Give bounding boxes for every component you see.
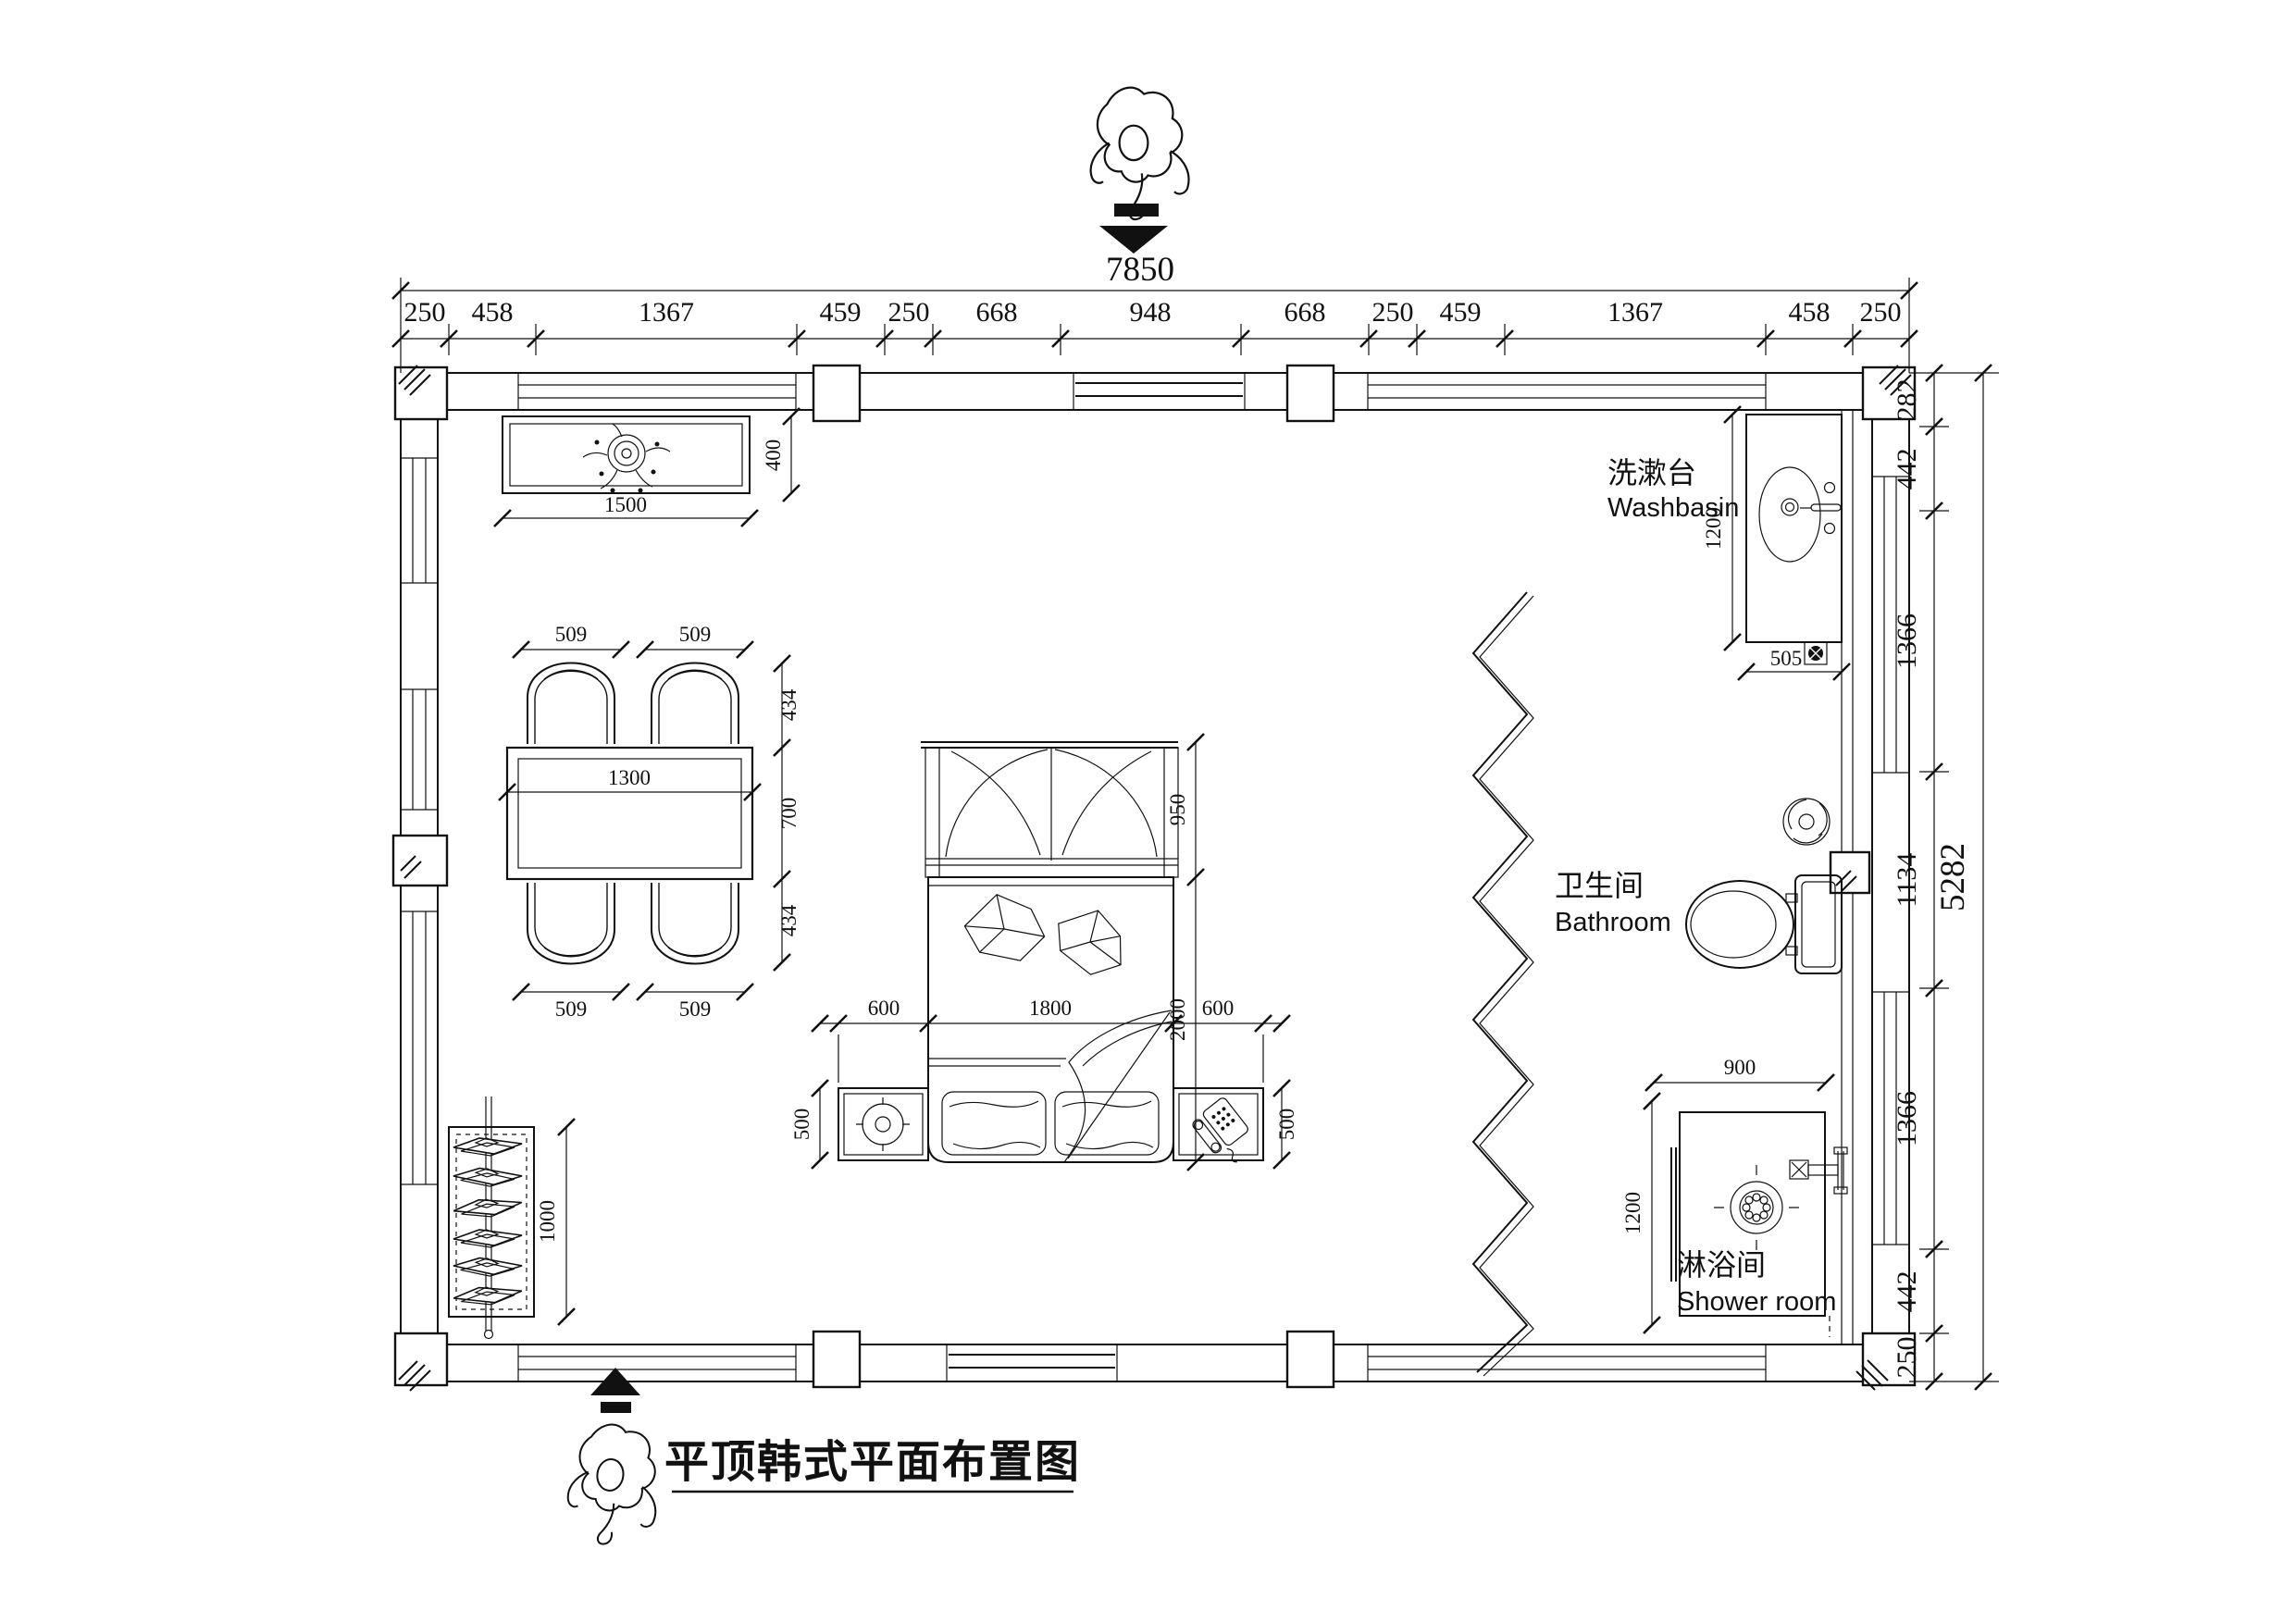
entry-top (1091, 88, 1189, 254)
window-top-left (518, 373, 796, 410)
dim-right-0: 282 (1892, 379, 1922, 421)
dim-top-3: 459 (820, 297, 862, 328)
dining-chair (652, 663, 738, 745)
entry-arrow-top-icon (1114, 204, 1159, 217)
dim-tv-depth: 400 (762, 440, 785, 472)
dim-top-2: 1367 (639, 297, 694, 328)
dim-top-5: 668 (976, 297, 1018, 328)
hanger-icon (453, 1285, 523, 1307)
dim-right-1: 442 (1892, 449, 1922, 490)
nightstand-left (838, 1088, 928, 1160)
hanger-icon (453, 1138, 522, 1156)
dim-bed-w: 1800 (1029, 997, 1072, 1020)
dim-stand-d: 500 (790, 1109, 813, 1141)
dining-chair (652, 883, 738, 964)
dim-stand-d: 500 (1275, 1109, 1298, 1141)
dim-chair-w: 509 (555, 623, 588, 646)
bathroom-label-en: Bathroom (1555, 908, 1671, 937)
pillow-icon (942, 1092, 1159, 1155)
column-bottom-left (395, 1333, 447, 1385)
floor-plan-canvas: 7850 250 458 1367 459 250 668 948 668 25… (0, 0, 2296, 1623)
dim-basin-w: 505 (1770, 647, 1803, 670)
entry-door-top (1074, 373, 1245, 410)
tv-console: 1500 400 (494, 408, 800, 527)
window-top-right (1368, 373, 1766, 410)
floor-plan-sheet: 7850 250 458 1367 459 250 668 948 668 25… (0, 0, 2296, 1623)
dim-top-4: 250 (888, 297, 930, 328)
column-top-left (395, 367, 447, 419)
dim-right-2: 1366 (1892, 613, 1922, 669)
cushion-icon (960, 886, 1132, 981)
column-top-mid-1 (813, 365, 860, 421)
shower-head-icon (1790, 1147, 1847, 1194)
washbasin-area: 洗漱台 Washbasin 1200 505 (1607, 406, 1850, 680)
dim-nightstand-w: 600 (1202, 997, 1235, 1020)
column-bottom-mid-1 (813, 1332, 860, 1387)
dim-right-4: 1366 (1892, 1091, 1922, 1146)
shower-label-zh: 淋浴间 (1677, 1248, 1766, 1282)
lamp-icon (856, 1097, 910, 1151)
dim-top-6: 948 (1130, 297, 1172, 328)
dim-top-12: 250 (1860, 297, 1902, 328)
dim-seat-d: 434 (777, 688, 800, 721)
dim-tv-width: 1500 (604, 493, 647, 516)
drawing-title: 平顶韩式平面布置图 (664, 1438, 1081, 1487)
dim-table-d: 700 (777, 798, 800, 830)
dim-right-5: 442 (1892, 1271, 1922, 1313)
dim-nightstand-w: 600 (868, 997, 900, 1020)
dim-shower-d: 1200 (1621, 1192, 1644, 1234)
dim-top-0: 250 (404, 297, 446, 328)
toilet-icon (1686, 875, 1842, 973)
right-dimension-total: 5282 (1934, 365, 1992, 1390)
person-icon (1091, 88, 1189, 219)
dim-total-width: 7850 (1106, 251, 1174, 289)
column-left-mid (393, 836, 447, 886)
dim-seat-d: 434 (777, 904, 800, 936)
blanket (928, 1010, 1172, 1162)
window-left-2 (401, 689, 438, 810)
dim-cabinet-d: 950 (1166, 794, 1189, 826)
foot-wardrobe (921, 742, 1178, 877)
bathroom-label-zh: 卫生间 (1555, 869, 1644, 902)
dim-top-8: 250 (1372, 297, 1414, 328)
window-bottom-left (518, 1344, 796, 1381)
dim-top-7: 668 (1285, 297, 1326, 328)
plant-icon (583, 424, 670, 493)
dim-shower-w: 900 (1724, 1056, 1756, 1079)
dim-total-height: 5282 (1934, 843, 1972, 911)
person-icon (562, 1419, 666, 1551)
entry-bottom (562, 1368, 666, 1551)
dim-top-9: 459 (1440, 297, 1482, 328)
window-left-1 (401, 458, 438, 583)
dining-chair (527, 883, 614, 964)
washbasin-label-zh: 洗漱台 (1607, 456, 1696, 489)
washbasin-dims: 1200 505 (1702, 406, 1850, 680)
entry-door-bottom (947, 1344, 1117, 1381)
shower-drain-icon (1714, 1165, 1799, 1250)
dim-rack-len: 1000 (536, 1200, 559, 1243)
bed-dims: 600 1800 600 950 2000 500 500 (790, 734, 1298, 1171)
floor-drain-icon (1805, 642, 1827, 664)
dim-top-10: 1367 (1607, 297, 1663, 328)
rack-dims: 1000 (536, 1119, 575, 1325)
shower-room: 淋浴间 Shower room 900 1200 (1621, 1056, 1847, 1337)
window-bottom-right (1368, 1344, 1766, 1381)
shower-label-en: Shower room (1677, 1287, 1836, 1317)
dim-basin-len: 1200 (1702, 507, 1725, 550)
hanger-icon (453, 1197, 523, 1220)
dim-top-1: 458 (472, 297, 514, 328)
sink-icon (1759, 467, 1820, 562)
clothes-rack: 1000 (449, 1096, 575, 1339)
dining-set: 509 509 509 509 1300 434 700 434 (499, 623, 800, 1021)
dim-bed-len: 2000 (1166, 998, 1189, 1041)
hanger-icon (453, 1167, 522, 1188)
column-top-mid-2 (1287, 365, 1334, 421)
entry-arrow-bottom-icon (601, 1402, 631, 1413)
top-dimension-chain: 250 458 1367 459 250 668 948 668 250 459… (392, 297, 1917, 355)
shower-door (1671, 1147, 1676, 1282)
entry-arrow-top-icon (1099, 226, 1168, 254)
nightstand-right (1173, 1088, 1263, 1170)
tv-console-dims: 1500 400 (494, 408, 800, 527)
window-left-3 (401, 911, 438, 1184)
dim-top-11: 458 (1789, 297, 1831, 328)
dim-chair-w: 509 (679, 623, 712, 646)
column-bottom-mid-2 (1287, 1332, 1334, 1387)
exhaust-fan-icon (1783, 799, 1830, 845)
bathroom-area: 卫生间 Bathroom (1555, 799, 1842, 973)
dim-chair-w: 509 (679, 997, 712, 1021)
folding-partition (1473, 592, 1533, 1376)
bed (928, 877, 1173, 1162)
dim-right-3: 1134 (1892, 853, 1922, 908)
dim-chair-w: 509 (555, 997, 588, 1021)
drawing-title-block: 平顶韩式平面布置图 (664, 1438, 1081, 1492)
dim-right-6: 250 (1892, 1337, 1922, 1379)
hanger-icon (453, 1230, 522, 1247)
dining-chair (527, 663, 614, 745)
hanger-icon (453, 1257, 522, 1278)
dim-table-w: 1300 (608, 766, 651, 789)
